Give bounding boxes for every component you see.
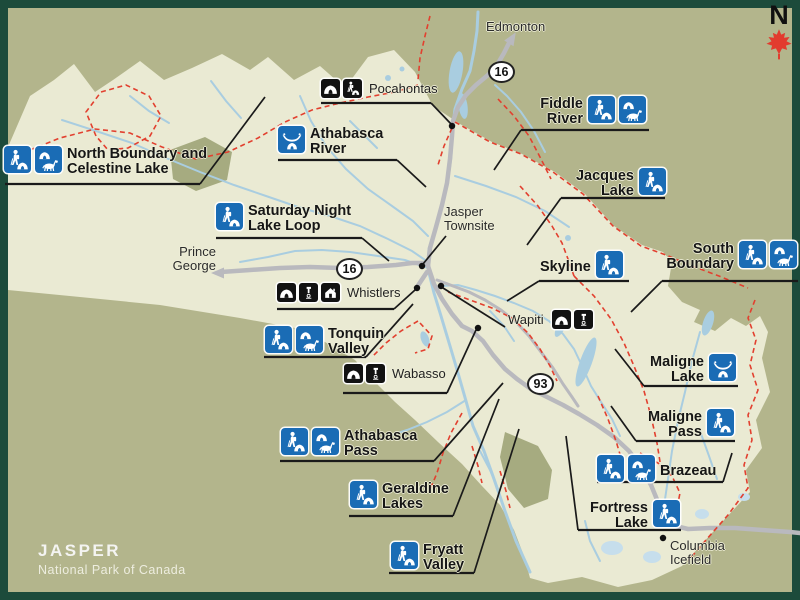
hiking-camping-icon [707, 409, 734, 436]
trail-name-line1: Jacques [568, 169, 634, 184]
highway-16-shield-north: 16 [488, 61, 515, 83]
sani-dump-icon [299, 283, 318, 302]
hiking-camping-icon [739, 241, 766, 268]
trail-name-line2: Lakes [382, 497, 449, 512]
columbia-line1: Columbia [670, 539, 725, 553]
jasper-line1: Jasper [444, 205, 495, 219]
horse-camping-icon [312, 428, 339, 455]
jasper-park-map: Edmonton Prince George Jasper Townsite C… [0, 0, 800, 600]
trail-name-line2: Lake [568, 184, 634, 199]
campground-whistlers: Whistlers [277, 283, 400, 302]
campground-wapiti: Wapiti [504, 310, 593, 329]
trail-name-line2: River [515, 112, 583, 127]
hiking-camping-icon [350, 481, 377, 508]
hiking-camping-icon [4, 146, 31, 173]
trail-name-line2: River [310, 142, 383, 157]
city-label-columbia-icefield: Columbia Icefield [670, 539, 725, 566]
trail-name-line1: Fryatt [423, 543, 464, 558]
trail-name-line1: Geraldine [382, 482, 449, 497]
trail-name-line1: Fortress [584, 501, 648, 516]
trail-label-maligne-pass: MalignePass [640, 409, 734, 440]
trail-label-brazeau: Brazeau [597, 455, 716, 482]
hiking-camping-icon [596, 251, 623, 278]
trail-name-line2: Boundary [664, 257, 734, 272]
campground-pocahontas: Pocahontas [321, 79, 438, 98]
trail-name-line2: Lake [584, 516, 648, 531]
trail-name-line2: Valley [423, 558, 464, 573]
city-label-jasper-townsite: Jasper Townsite [444, 205, 495, 232]
hiking-camping-icon [639, 168, 666, 195]
trail-name-line1: Tonquin [328, 327, 384, 342]
trail-name-line2: Celestine Lake [67, 162, 207, 177]
trail-name-line2: Valley [328, 342, 384, 357]
park-subtitle: National Park of Canada [38, 563, 186, 577]
trail-name-line1: Athabasca [344, 429, 417, 444]
trail-label-jacques-lake: JacquesLake [568, 168, 666, 199]
sani-dump-icon [574, 310, 593, 329]
trail-label-athabasca-pass: AthabascaPass [281, 428, 417, 459]
trail-name-line2: Lake Loop [248, 219, 351, 234]
hiking-camping-icon [597, 455, 624, 482]
horse-camping-icon [35, 146, 62, 173]
highway-93-shield: 93 [527, 373, 554, 395]
maple-leaf-icon [762, 28, 796, 60]
hiking-camping-icon [653, 500, 680, 527]
jasper-line2: Townsite [444, 219, 495, 233]
hiking-camping-icon [391, 542, 418, 569]
trail-label-skyline: Skyline [540, 251, 623, 278]
campground-wabasso: Wabasso [344, 364, 446, 383]
trail-label-south-boundary: SouthBoundary [664, 241, 797, 272]
trail-label-tonquin-valley: TonquinValley [265, 326, 384, 357]
park-title-block: JASPER National Park of Canada [38, 541, 186, 577]
trail-name-line1: Brazeau [660, 464, 716, 479]
trail-name-line1: South [664, 242, 734, 257]
hiking-camping-icon [588, 96, 615, 123]
canoe-camping-icon [278, 126, 305, 153]
north-label: N [760, 2, 798, 28]
trail-label-maligne-lake: MaligneLake [642, 354, 736, 385]
campground-icon [321, 79, 340, 98]
canoe-camping-icon [709, 354, 736, 381]
park-title: JASPER [38, 541, 186, 561]
highway-16-shield-west: 16 [336, 258, 363, 280]
north-indicator: N [760, 2, 798, 65]
trail-name-line1: Skyline [540, 260, 591, 275]
campground-name: Pocahontas [369, 81, 438, 96]
trail-label-north-boundary: North Boundary andCelestine Lake [4, 146, 207, 177]
trail-name-line1: Maligne [640, 410, 702, 425]
trail-label-geraldine-lakes: GeraldineLakes [350, 481, 449, 512]
hiking-camping-icon [216, 203, 243, 230]
city-label-prince-george: Prince George [168, 245, 216, 272]
columbia-line2: Icefield [670, 553, 725, 567]
sani-dump-icon [366, 364, 385, 383]
trail-label-saturday-night: Saturday NightLake Loop [216, 203, 351, 234]
campground-icon [552, 310, 571, 329]
backcountry-camping-icon [343, 79, 362, 98]
trail-name-line1: Athabasca [310, 127, 383, 142]
hiking-camping-icon [265, 326, 292, 353]
horse-camping-icon [628, 455, 655, 482]
campground-name: Whistlers [347, 285, 400, 300]
hiking-camping-icon [281, 428, 308, 455]
trail-name-line1: Saturday Night [248, 204, 351, 219]
trail-name-line1: Maligne [642, 355, 704, 370]
trail-name-line1: Fiddle [515, 97, 583, 112]
campground-name: Wapiti [508, 312, 544, 327]
campground-icon [344, 364, 363, 383]
horse-camping-icon [619, 96, 646, 123]
trail-label-athabasca-river: AthabascaRiver [278, 126, 383, 157]
trail-name-line2: Pass [640, 425, 702, 440]
horse-camping-icon [296, 326, 323, 353]
trail-name-line1: North Boundary and [67, 147, 207, 162]
campground-icon [277, 283, 296, 302]
interpretive-centre-icon [321, 283, 340, 302]
prince-george-line1: Prince [168, 245, 216, 259]
trail-name-line2: Lake [642, 370, 704, 385]
trail-label-fryatt-valley: FryattValley [391, 542, 464, 573]
trail-label-fiddle-river: FiddleRiver [515, 96, 646, 127]
horse-camping-icon [770, 241, 797, 268]
campground-name: Wabasso [392, 366, 446, 381]
trail-label-fortress-lake: FortressLake [584, 500, 680, 531]
prince-george-line2: George [168, 259, 216, 273]
trail-name-line2: Pass [344, 444, 417, 459]
city-label-edmonton: Edmonton [486, 20, 545, 34]
